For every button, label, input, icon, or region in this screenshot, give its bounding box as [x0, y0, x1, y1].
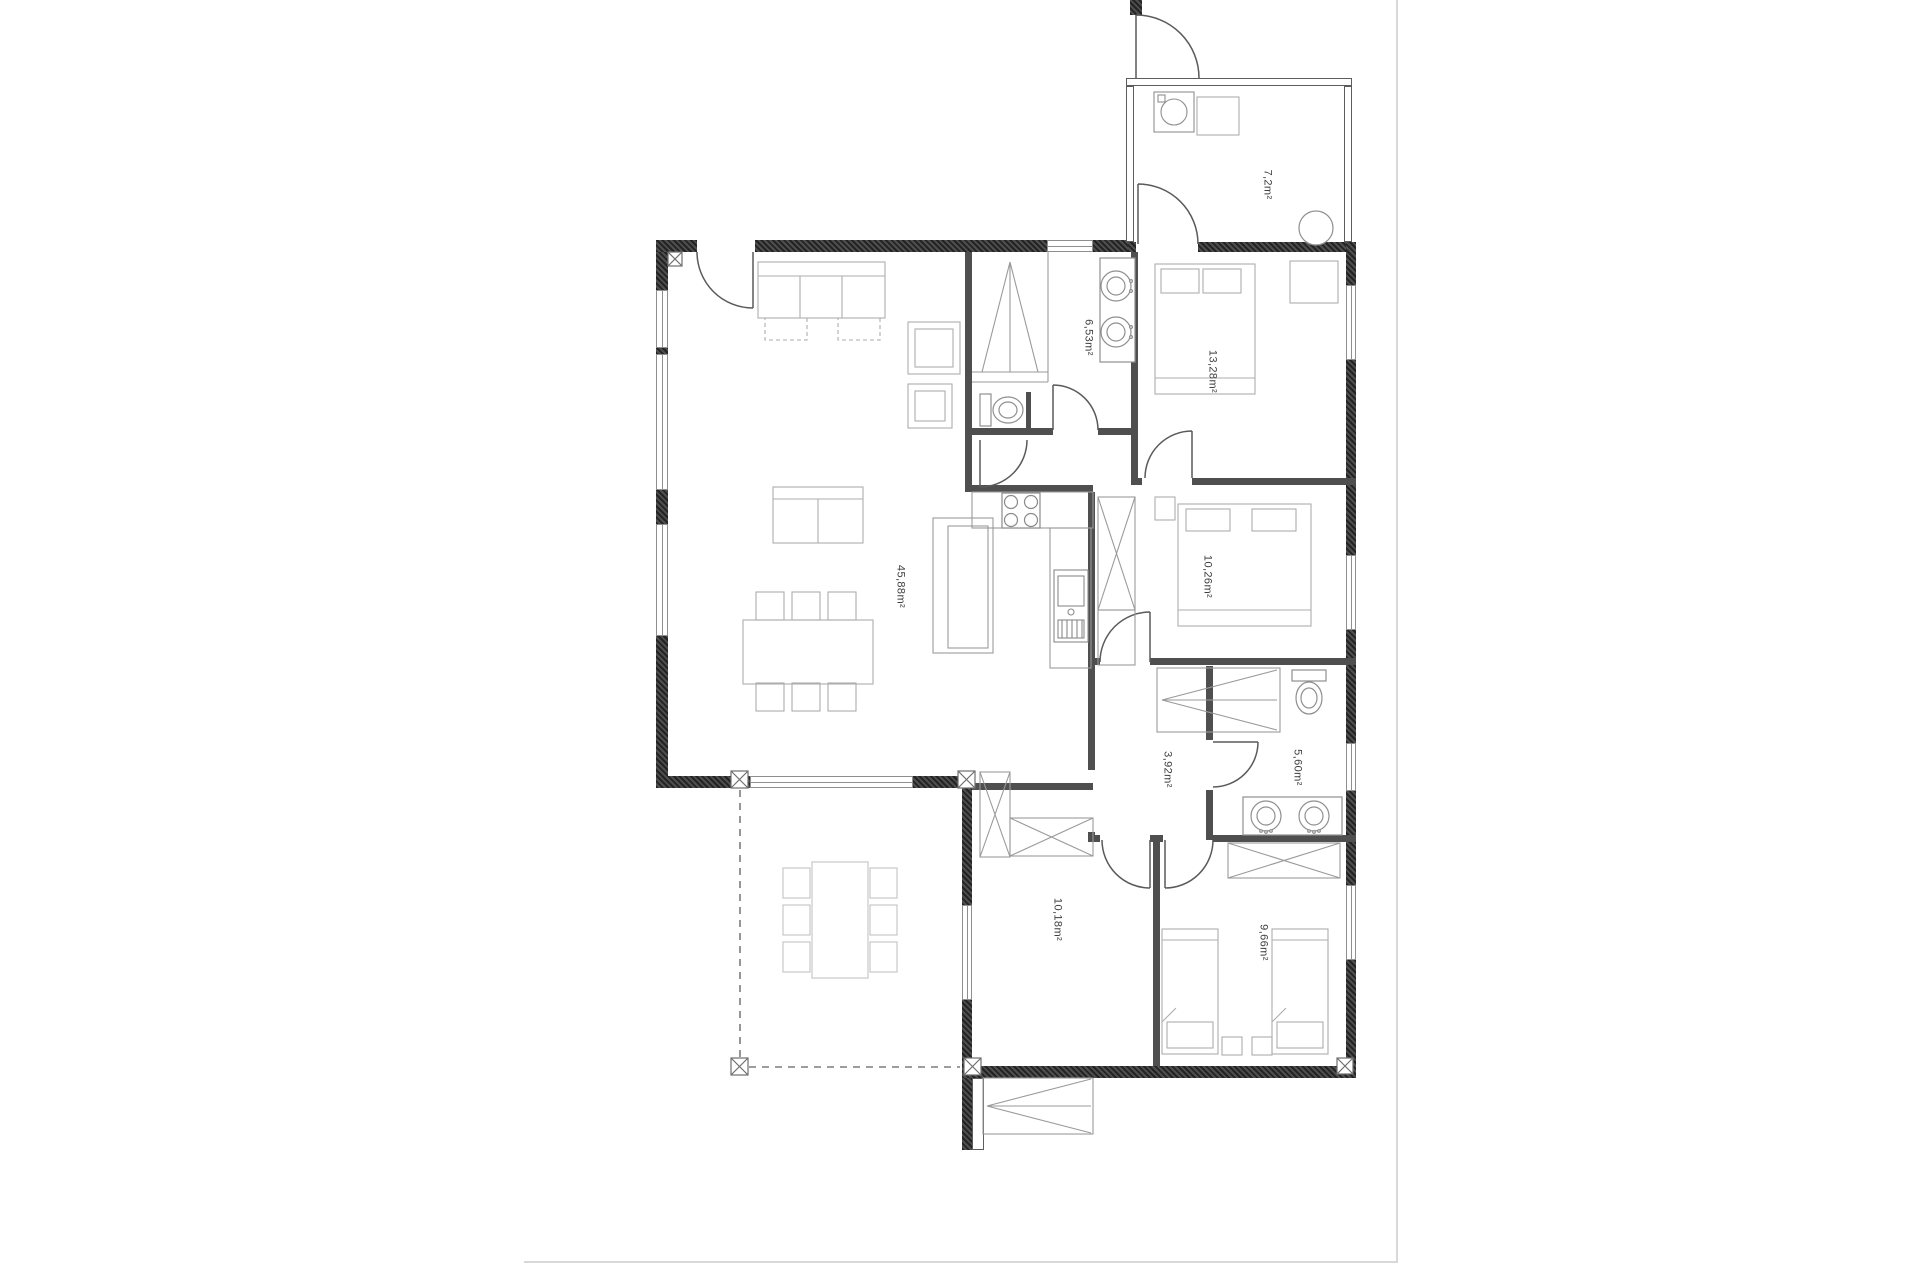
desk	[1290, 261, 1338, 303]
room-label-bedroom2: 10,26m²	[1201, 540, 1214, 614]
bed-double	[1155, 497, 1311, 626]
post-icon	[668, 252, 1353, 1075]
toilet-icon	[980, 394, 1023, 426]
loveseat-sofa	[773, 487, 863, 543]
door-icon	[697, 15, 1258, 888]
terrace-boundary	[740, 790, 960, 1067]
wardrobe-icon	[1228, 843, 1340, 878]
shower-icon	[972, 252, 1048, 382]
plan-overlay	[0, 0, 1920, 1280]
washing-machine-icon	[1154, 92, 1194, 132]
toilet-icon	[1292, 670, 1326, 714]
bed-single	[1162, 929, 1328, 1055]
stove-icon	[1002, 493, 1040, 528]
floor-plan-document: 45,88m² 6,53m² 13,28m² 10,26m² 3,92m² 5,…	[0, 0, 1920, 1280]
side-table	[908, 322, 960, 428]
room-label-bedroom4: 9,66m²	[1257, 906, 1270, 980]
kitchen-sink-icon	[1054, 570, 1088, 642]
room-label-hallway: 3,92m²	[1161, 733, 1174, 807]
sofa	[758, 262, 885, 340]
kitchen-island	[933, 518, 993, 653]
double-sink-icon	[1100, 258, 1135, 362]
wardrobe-icon	[1098, 497, 1135, 665]
dining-table-chairs	[743, 592, 873, 711]
closet-icon	[1157, 668, 1280, 732]
storage-icon	[983, 1078, 1093, 1134]
bench	[1197, 97, 1239, 135]
room-label-bedroom1: 13,28m²	[1206, 335, 1219, 409]
room-label-entry: 7,2m²	[1261, 148, 1274, 222]
room-label-bedroom3: 10,18m²	[1051, 883, 1064, 957]
wardrobe-icon	[980, 772, 1093, 857]
room-label-bath-main: 6,53m²	[1082, 301, 1095, 375]
outdoor-dining-set	[783, 862, 897, 978]
room-label-living: 45,88m²	[894, 550, 907, 624]
room-label-bath2: 5,60m²	[1291, 731, 1304, 805]
water-heater-icon	[1299, 211, 1333, 245]
